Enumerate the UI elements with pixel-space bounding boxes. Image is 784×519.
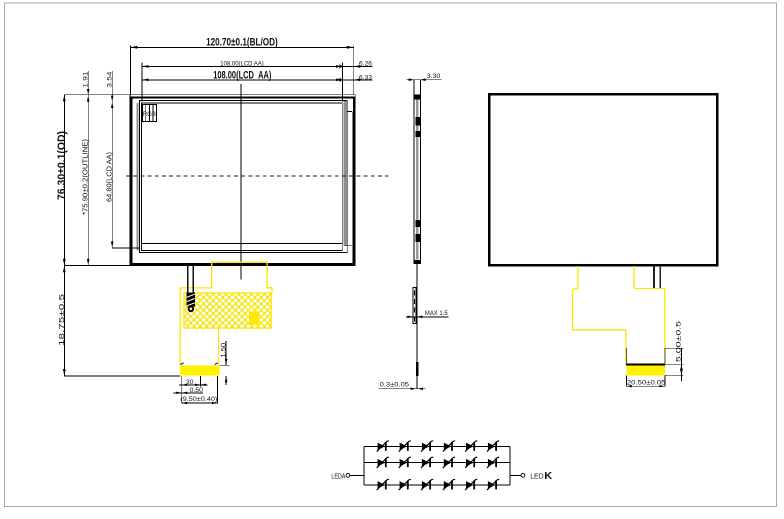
svg-text:6.33: 6.33 xyxy=(359,74,373,81)
svg-text:76.30±0.1(OD): 76.30±0.1(OD) xyxy=(56,131,68,200)
svg-text:20.50±0.05: 20.50±0.05 xyxy=(627,380,666,386)
svg-text:6.26: 6.26 xyxy=(359,61,373,68)
svg-text:(9.50±0.40): (9.50±0.40) xyxy=(180,396,217,403)
svg-text:0.50: 0.50 xyxy=(190,387,204,394)
svg-text:18.75±0.5: 18.75±0.5 xyxy=(59,294,66,346)
svg-text:RGB: RGB xyxy=(143,111,156,118)
svg-text:LEDA: LEDA xyxy=(331,471,345,480)
svg-text:108.00(LCD AA): 108.00(LCD AA) xyxy=(213,70,271,82)
svg-text:30: 30 xyxy=(186,380,194,386)
svg-text:3.54: 3.54 xyxy=(106,71,113,88)
svg-text:5.00±0.5: 5.00±0.5 xyxy=(676,320,683,362)
svg-text:*75.90±0.2(OUTLINE): *75.90±0.2(OUTLINE) xyxy=(83,139,90,215)
svg-text:0.3±0.05: 0.3±0.05 xyxy=(380,382,410,389)
svg-text:K: K xyxy=(544,471,553,482)
svg-text:MAX 1.5: MAX 1.5 xyxy=(425,311,448,317)
svg-text:3.30: 3.30 xyxy=(427,73,441,80)
svg-text:LED: LED xyxy=(530,471,544,480)
svg-text:1.91: 1.91 xyxy=(82,71,89,88)
svg-text:64.80(LCD AA): 64.80(LCD AA) xyxy=(106,152,113,202)
svg-text:120.70±0.1(BL/OD): 120.70±0.1(BL/OD) xyxy=(206,36,278,48)
svg-text:108.00(LCD AA): 108.00(LCD AA) xyxy=(220,60,264,67)
svg-text:1.50: 1.50 xyxy=(221,342,228,358)
